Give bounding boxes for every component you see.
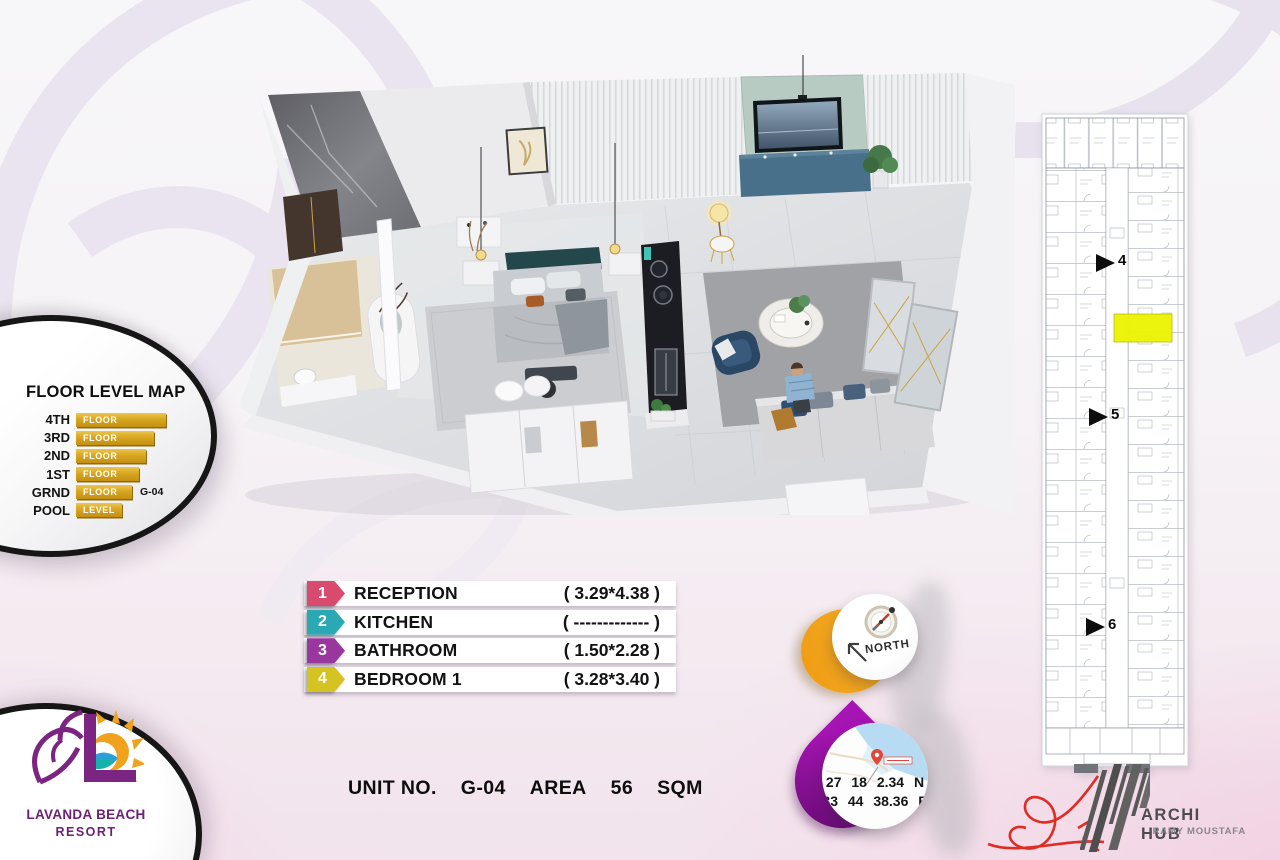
location-badge: 27 18 2.34 N 33 44 38.36 E <box>795 695 990 860</box>
unit-info: UNIT NO. G-04 AREA 56 SQM <box>348 777 703 800</box>
legend-number: 3 <box>307 638 345 663</box>
legend-row-bathroom: 3 BATHROOM ( 1.50*2.28 ) <box>304 638 676 663</box>
floor-bar: FLOOR <box>76 431 154 445</box>
legend-row-kitchen: 2 KITCHEN ( ------------- ) <box>304 610 676 635</box>
floor-level-label: 2ND <box>26 448 70 463</box>
master-plan-flag-5: 5 <box>1111 406 1119 423</box>
floor-level-map: FLOOR LEVEL MAP 4TH FLOOR 3RD FLOOR 2ND … <box>26 383 216 522</box>
legend-number: 4 <box>307 667 345 692</box>
room-dimensions: ( 3.29*4.38 ) <box>564 583 676 604</box>
floor-bar: FLOOR <box>76 467 139 481</box>
compass-disc <box>832 594 918 680</box>
legend-badge: 3 <box>307 638 345 663</box>
floor-row-1st: 1ST FLOOR <box>26 467 216 481</box>
location-map-disc: 27 18 2.34 N 33 44 38.36 E <box>822 723 928 829</box>
archi-hub-logo-icon <box>1080 764 1150 856</box>
floor-row-pool: POOL LEVEL <box>26 503 216 517</box>
room-name: KITCHEN <box>354 612 433 633</box>
floor-row-3rd: 3RD FLOOR <box>26 431 216 445</box>
legend-badge: 2 <box>307 610 345 635</box>
studio-name: ARCHI HUB <box>1141 806 1251 844</box>
compass-rose-icon <box>862 603 900 641</box>
floor-bar: FLOOR <box>76 413 166 427</box>
legend-number: 2 <box>307 610 345 635</box>
master-plan-flag-4: 4 <box>1118 252 1126 269</box>
room-dimensions: ( 1.50*2.28 ) <box>564 640 676 661</box>
studio-author: RAMY MOUSTAFA <box>1141 826 1246 837</box>
room-legend: 1 RECEPTION ( 3.29*4.38 ) 2 KITCHEN ( --… <box>304 581 676 695</box>
poster: 4 5 6 FLOOR LEVEL MAP 4TH FLOOR 3RD FLOO… <box>0 0 1280 860</box>
coordinate-east: 33 44 38.36 E <box>822 792 928 811</box>
legend-row-bedroom: 4 BEDROOM 1 ( 3.28*3.40 ) <box>304 667 676 692</box>
floor-level-label: GRND <box>26 485 70 500</box>
resort-logo-icon <box>28 710 144 808</box>
room-name: BATHROOM <box>354 640 457 661</box>
legend-row-reception: 1 RECEPTION ( 3.29*4.38 ) <box>304 581 676 606</box>
floor-row-4th: 4TH FLOOR <box>26 413 216 427</box>
floor-level-label: 3RD <box>26 430 70 445</box>
master-plan <box>1040 108 1190 780</box>
room-name: RECEPTION <box>354 583 458 604</box>
area-label: AREA <box>530 777 587 800</box>
legend-badge: 4 <box>307 667 345 692</box>
floor-row-grnd: GRND FLOOR G-04 <box>26 485 216 499</box>
room-dimensions: ( 3.28*3.40 ) <box>564 669 676 690</box>
floor-row-2nd: 2ND FLOOR <box>26 449 216 463</box>
floor-bar: FLOOR <box>76 485 132 499</box>
floor-bar: FLOOR <box>76 449 146 463</box>
legend-badge: 1 <box>307 581 345 606</box>
resort-name: LAVANDA BEACH <box>0 807 172 822</box>
unit-no-value: G-04 <box>461 777 506 800</box>
resort-name-sub: RESORT <box>0 825 172 839</box>
coordinates: 27 18 2.34 N 33 44 38.36 E <box>822 773 928 811</box>
master-plan-flag-6: 6 <box>1108 616 1116 633</box>
floor-level-label: POOL <box>26 503 70 518</box>
floor-level-label: 4TH <box>26 412 70 427</box>
legend-number: 1 <box>307 581 345 606</box>
floor-level-title: FLOOR LEVEL MAP <box>26 383 216 402</box>
area-unit: SQM <box>657 777 703 800</box>
floor-level-label: 1ST <box>26 467 70 482</box>
coordinate-north: 27 18 2.34 N <box>822 773 928 792</box>
floor-note-g04: G-04 <box>140 486 163 498</box>
room-name: BEDROOM 1 <box>354 669 462 690</box>
unit-no-label: UNIT NO. <box>348 777 437 800</box>
room-dimensions: ( ------------- ) <box>563 612 676 633</box>
area-value: 56 <box>611 777 634 800</box>
floor-bar: LEVEL <box>76 503 122 517</box>
floor-plan-render <box>225 55 1015 515</box>
